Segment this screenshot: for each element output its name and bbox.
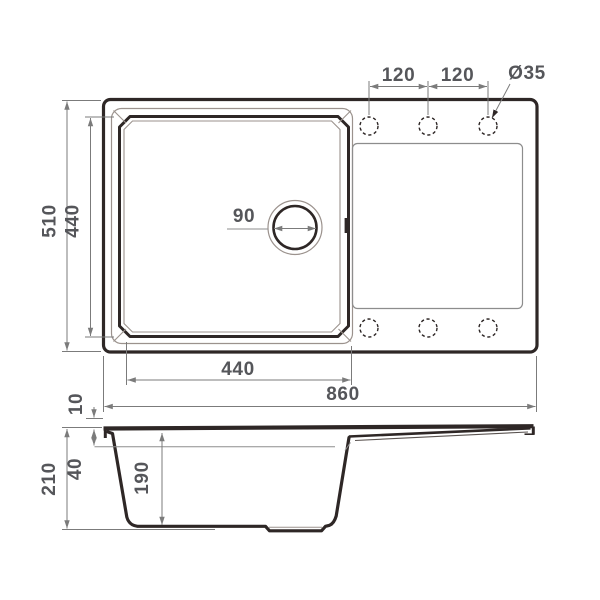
drain-diameter-label: 90	[233, 206, 255, 227]
faucet-hole	[479, 117, 497, 135]
extension-lines	[85, 117, 114, 337]
bowl-depth-label: 190	[132, 461, 153, 495]
drain-outer-circle	[268, 201, 322, 255]
bowl-width-label: 440	[63, 204, 84, 238]
top-surface	[104, 426, 534, 428]
dim-rim-height: 10	[66, 393, 103, 437]
overall-width-label: 510	[40, 204, 61, 238]
overall-depth-label: 210	[39, 462, 60, 496]
side-view: 10 210 40 190	[39, 393, 534, 531]
dim-bowl-length: 440	[127, 342, 352, 385]
drawing-canvas: 90 120 120 Ø35 510	[0, 0, 600, 600]
dim-ledge-depth: 40	[65, 431, 94, 480]
drain-inner-circle	[274, 206, 317, 249]
dim-hole-pitch: 120 120 Ø35	[369, 63, 546, 118]
drain: 90	[227, 201, 322, 255]
faucet-hole	[419, 319, 437, 337]
faucet-hole	[360, 319, 378, 337]
dim-bowl-width: 440	[63, 117, 115, 337]
overall-length-label: 860	[326, 384, 360, 405]
extension-lines	[104, 356, 537, 412]
rim-height-label: 10	[66, 393, 87, 415]
drainboard-underside	[349, 428, 531, 436]
ledge-depth-label: 40	[65, 458, 86, 480]
top-view: 90 120 120 Ø35 510	[40, 63, 546, 412]
sink-outline	[104, 100, 538, 353]
faucet-hole	[479, 319, 497, 337]
faucet-holes	[360, 117, 497, 337]
ledge-level-line	[95, 443, 351, 451]
hole-pitch-left-label: 120	[382, 65, 416, 86]
bowl-length-label: 440	[221, 359, 255, 380]
hole-pitch-right-label: 120	[441, 65, 475, 86]
sink-technical-drawing: 90 120 120 Ø35 510	[0, 0, 600, 600]
hole-diameter-label: Ø35	[508, 63, 546, 84]
dim-overall-length: 860	[104, 356, 537, 412]
faucet-hole	[360, 117, 378, 135]
faucet-hole	[419, 117, 437, 135]
drainboard	[353, 144, 523, 309]
